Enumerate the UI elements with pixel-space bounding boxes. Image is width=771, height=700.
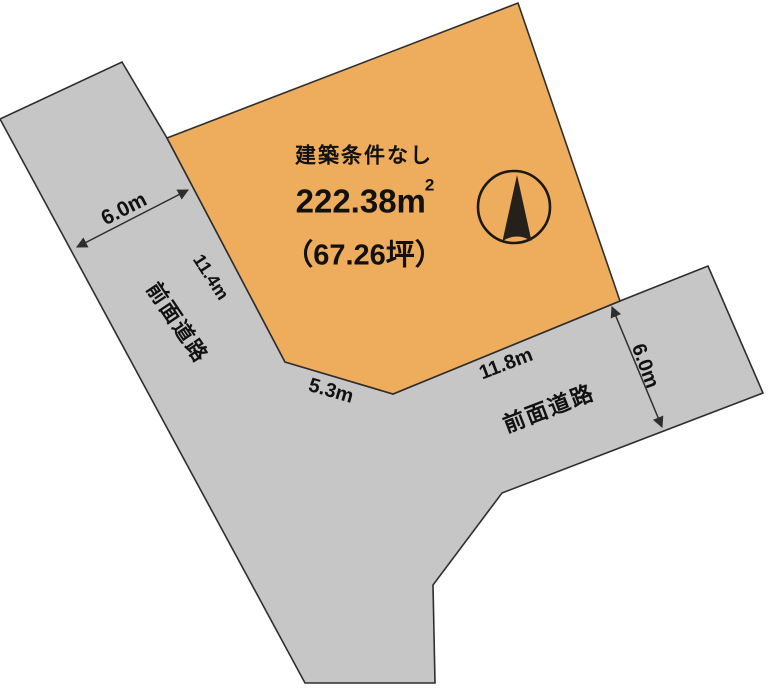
plot-area-tsubo-label: （67.26坪） <box>284 242 444 271</box>
plot-area-sqm-exponent: 2 <box>425 177 434 194</box>
site-plan-canvas <box>0 0 771 700</box>
site-plan-diagram: 建築条件なし 222.38m2 （67.26坪） 6.0m 11.4m 前面道路… <box>0 0 771 700</box>
plot-area-sqm-label: 222.38m2 <box>296 185 435 218</box>
plot-condition-label: 建築条件なし <box>295 146 433 167</box>
plot-area-sqm-value: 222.38m <box>296 185 426 218</box>
